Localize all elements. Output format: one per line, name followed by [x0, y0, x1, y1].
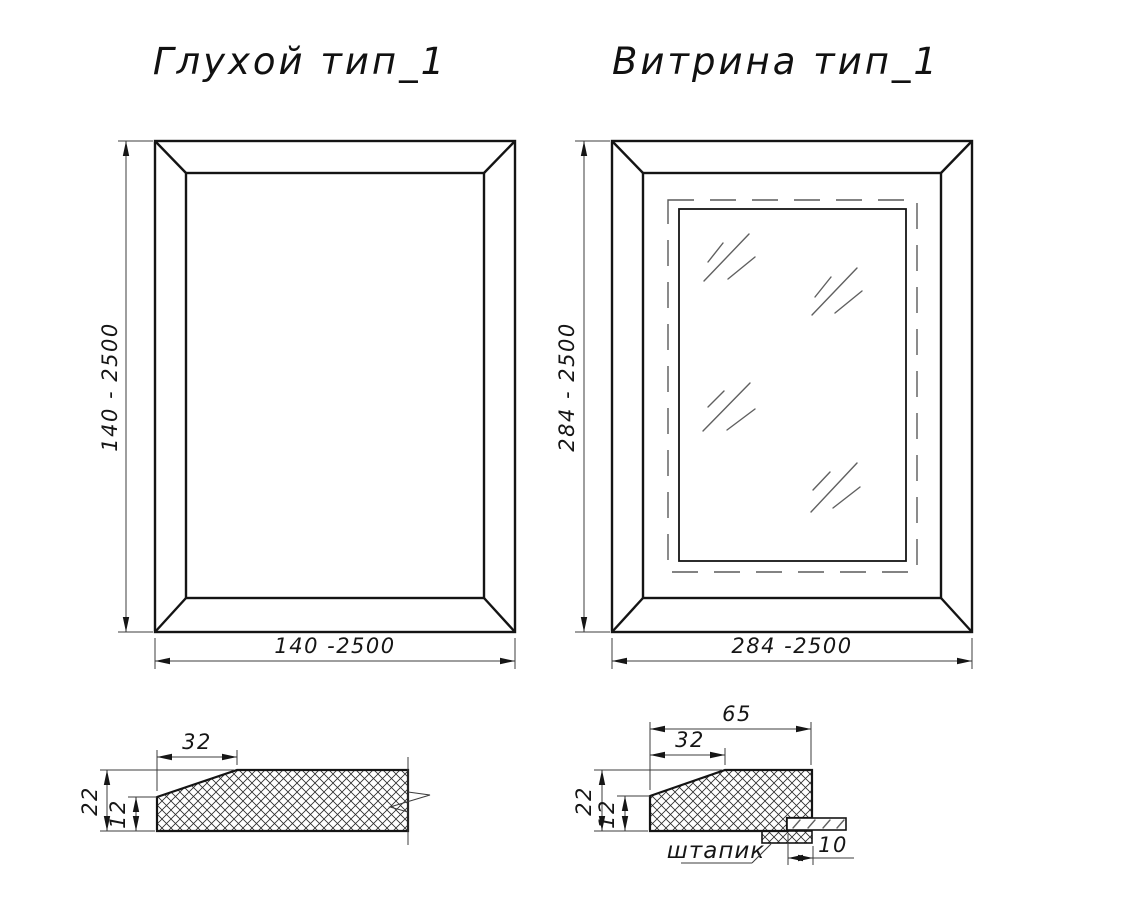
blind-section-edge-thickness-text: 12	[106, 799, 130, 829]
glazing-rebate-hidden-line	[668, 200, 917, 572]
glazing-bead-callout: штапик	[667, 838, 771, 864]
vitrine-section-top-width-dimension: 32	[650, 728, 725, 765]
blind-outer-frame	[155, 141, 515, 632]
glass-pane-section	[787, 818, 846, 830]
miter-joint-line	[484, 141, 515, 173]
technical-drawing-canvas: Глухой тип_1 Витрина тип_1 140 - 2500 14…	[0, 0, 1139, 900]
blind-section-view: 32 22 12	[78, 730, 430, 845]
glass-pane-edge	[679, 209, 906, 561]
vitrine-outer-frame	[612, 141, 972, 632]
miter-joint-line	[612, 141, 643, 173]
vitrine-inner-frame-edge	[643, 173, 941, 598]
vitrine-width-dim-text: 284 -2500	[731, 634, 852, 658]
miter-joint-line	[941, 598, 972, 632]
miter-joint-line	[484, 598, 515, 632]
vitrine-width-dimension: 284 -2500	[612, 634, 972, 669]
vitrine-section-thickness-text: 22	[572, 786, 596, 816]
miter-joint-line	[941, 141, 972, 173]
glass-reflection-mark	[728, 257, 755, 279]
glazing-depth-dim-text: 10	[818, 833, 848, 857]
blind-section-top-width-text: 32	[182, 730, 212, 754]
technical-drawing-page: Глухой тип_1 Витрина тип_1 140 - 2500 14…	[0, 0, 1139, 900]
vitrine-section-total-width-text: 65	[722, 702, 752, 726]
glass-reflection-mark	[813, 472, 830, 490]
miter-joint-line	[155, 598, 186, 632]
vitrine-section-view: 65 32 22 12 10 штапик	[572, 702, 854, 865]
glass-reflection-mark	[811, 463, 857, 512]
vitrine-height-dim-text: 284 - 2500	[555, 322, 579, 451]
blind-panel-title: Глухой тип_1	[153, 40, 447, 83]
vitrine-panel-title: Витрина тип_1	[612, 40, 940, 83]
vitrine-front-view: 284 - 2500 284 -2500	[555, 141, 972, 669]
blind-width-dimension: 140 -2500	[155, 634, 515, 669]
glass-reflection-mark	[835, 291, 862, 313]
blind-width-dim-text: 140 -2500	[274, 634, 395, 658]
glazing-bead-section	[762, 831, 812, 843]
blind-height-dim-text: 140 - 2500	[98, 322, 122, 451]
glass-reflection-mark	[815, 277, 831, 297]
vitrine-section-edge-thickness-dimension: 12	[595, 796, 650, 831]
glazing-bead-label: штапик	[667, 838, 765, 864]
miter-joint-line	[155, 141, 186, 173]
glass-reflection-mark	[708, 391, 724, 407]
blind-inner-panel-edge	[186, 173, 484, 598]
vitrine-section-edge-thickness-text: 12	[595, 799, 619, 829]
glass-reflection-marks	[703, 234, 862, 512]
vitrine-height-dimension: 284 - 2500	[555, 141, 610, 632]
blind-section-thickness-text: 22	[78, 786, 102, 816]
glass-reflection-mark	[703, 383, 750, 431]
blind-height-dimension: 140 - 2500	[98, 141, 153, 632]
miter-joint-line	[612, 598, 643, 632]
blind-section-profile	[157, 770, 408, 831]
blind-front-view: 140 - 2500 140 -2500	[98, 141, 515, 669]
glass-reflection-mark	[708, 243, 723, 262]
glass-reflection-mark	[833, 487, 860, 508]
glass-reflection-mark	[727, 409, 755, 430]
vitrine-section-top-width-text: 32	[675, 728, 705, 752]
blind-section-edge-thickness-dimension: 12	[106, 797, 157, 831]
